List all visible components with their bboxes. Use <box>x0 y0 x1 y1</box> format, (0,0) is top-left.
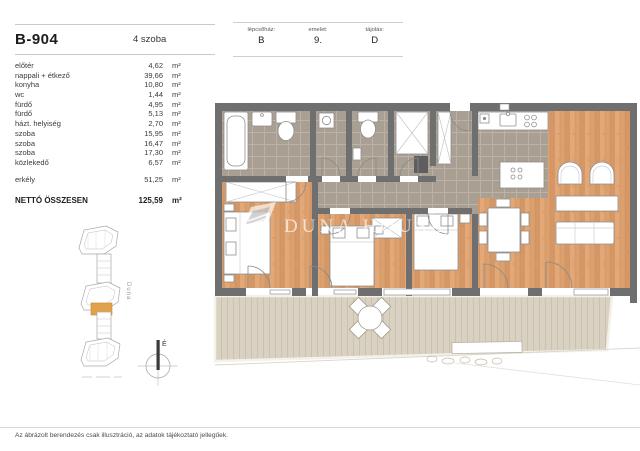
corridor-floor <box>312 182 472 208</box>
window-sills <box>270 289 608 295</box>
bathroom-sink <box>252 112 272 126</box>
bathtub <box>224 112 248 170</box>
armchair-2 <box>590 162 614 184</box>
room-row: házt. helyiség2,70m² <box>15 119 200 129</box>
svg-text:®: ® <box>430 213 435 220</box>
hand-basin <box>353 148 361 160</box>
watermark-text: DUNA HOUSE <box>284 216 446 237</box>
room-row: szoba17,30m² <box>15 148 200 158</box>
room-row: közlekedő6,57m² <box>15 158 200 168</box>
room-row: szoba15,95m² <box>15 129 200 139</box>
footer-divider <box>0 427 640 428</box>
room-list: előtér4,62m² nappali + étkező39,66m² kon… <box>15 61 200 206</box>
bedroom1-wardrobe <box>226 182 296 202</box>
site-map: Duna <box>79 226 131 377</box>
room-row: nappali + étkező39,66m² <box>15 71 200 81</box>
total-row: NETTÓ ÖSSZESEN125,59m² <box>15 196 200 206</box>
disclaimer-text: Az ábrázolt berendezés csak illusztráció… <box>15 432 228 439</box>
room-count-label: 4 szoba <box>133 34 166 45</box>
room-row: konyha10,80m² <box>15 80 200 90</box>
entry-wardrobe <box>438 112 451 164</box>
compass-north-label: É <box>162 339 167 348</box>
info-cell-floor: emelet: 9. <box>290 23 347 56</box>
kitchen-sink <box>500 112 516 126</box>
shower <box>396 112 428 154</box>
kitchen-island <box>500 162 544 188</box>
river-label: Duna <box>125 282 131 300</box>
info-cell-orientation: tájolás: D <box>346 23 403 56</box>
toilet-1 <box>276 112 296 141</box>
site-building-2 <box>81 282 120 315</box>
balcony-row: erkély51,25m² <box>15 175 200 185</box>
sofa <box>556 222 614 244</box>
shrub-sketch <box>427 356 502 365</box>
north-compass: É <box>138 339 178 386</box>
floorplan-page: DUNA HOUSE ® D <box>0 0 640 451</box>
unit-id: B-904 <box>15 31 58 48</box>
header: B-904 4 szoba <box>15 24 215 55</box>
balcony-deck <box>215 296 640 385</box>
site-building-3 <box>81 338 120 366</box>
info-table: lépcsőház: B emelet: 9. tájolás: D <box>233 22 403 57</box>
room-row: előtér4,62m² <box>15 61 200 71</box>
armchair-1 <box>558 162 582 184</box>
washing-machine <box>319 113 334 128</box>
tv-bench <box>556 196 618 211</box>
site-building-1 <box>79 226 118 254</box>
room-row: wc1,44m² <box>15 90 200 100</box>
balcony-planter <box>452 341 522 353</box>
info-cell-staircase: lépcsőház: B <box>233 23 290 56</box>
room-row: fürdő5,13m² <box>15 109 200 119</box>
room-row: szoba16,47m² <box>15 139 200 149</box>
room-row: fürdő4,95m² <box>15 100 200 110</box>
